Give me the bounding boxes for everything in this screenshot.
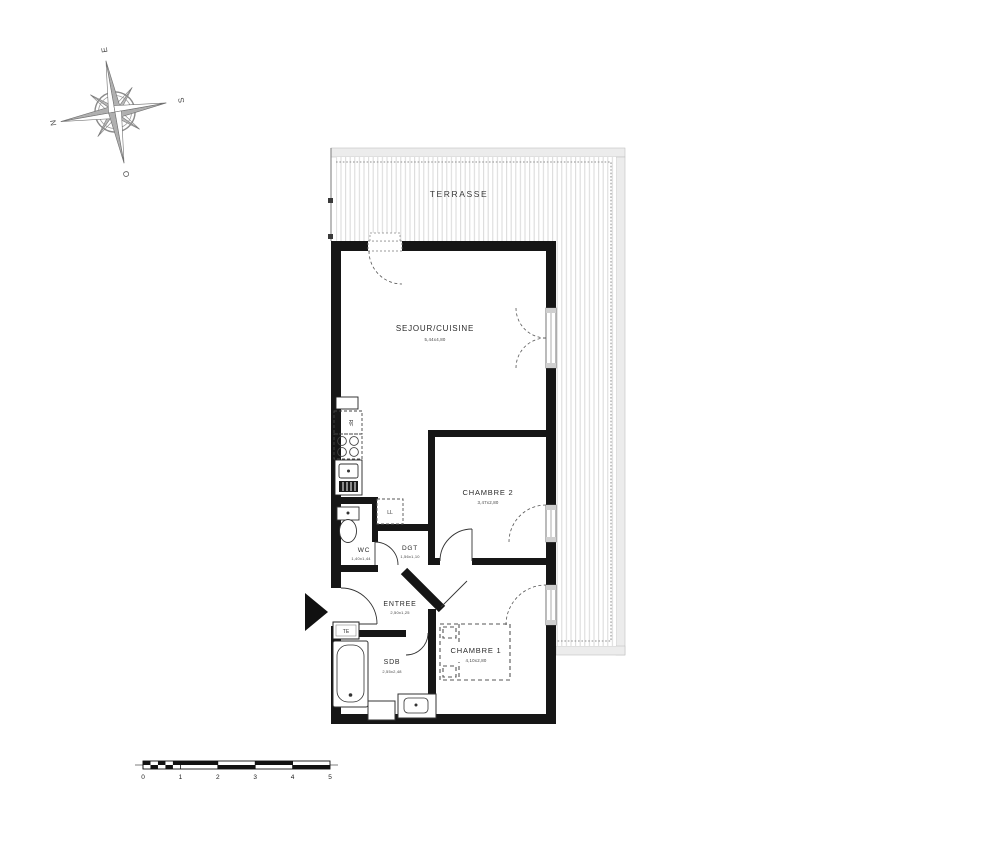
scale-num-5: 5 (328, 774, 332, 781)
terrace-railing-bottom (556, 646, 625, 655)
scale-num-3: 3 (253, 774, 257, 781)
sejour-label: SEJOUR/CUISINE (396, 324, 474, 333)
wall-right-4 (546, 625, 556, 724)
washbasin-drain (415, 704, 418, 707)
toilet-bowl (340, 520, 357, 543)
washing-machine-box: LL (377, 499, 403, 524)
compass-east-label: E (100, 46, 110, 53)
floor-plan-page: N E S O TERRASSE (0, 0, 1000, 857)
sejour-dims: 5,44x4,80 (424, 337, 445, 342)
wall-wc-bottom (331, 565, 378, 572)
terrace-decking-right (556, 241, 616, 646)
chambre1-dims: 4,10x2,80 (465, 658, 486, 663)
chambre2-label: CHAMBRE 2 (463, 488, 514, 497)
compass-rose: N E S O (38, 35, 198, 189)
terrace-railing-right (616, 157, 625, 655)
compass-north-label: N (48, 119, 58, 126)
floor-plan-canvas: N E S O TERRASSE (0, 0, 1000, 857)
wall-chambre2-top (428, 430, 546, 437)
sdb-cabinet (368, 701, 395, 720)
wc-label: WC (358, 547, 370, 554)
washing-machine-label: LL (387, 510, 393, 516)
scale-num-4: 4 (291, 774, 295, 781)
wall-right-2 (546, 368, 556, 505)
terrace-post (328, 234, 333, 239)
wall-chambre2-bottom-a (428, 558, 440, 565)
wall-chambre2-left (428, 437, 435, 558)
wall-right-3 (546, 542, 556, 585)
compass-west-label: O (121, 170, 131, 178)
scale-bar: 0 1 2 3 4 5 (135, 761, 338, 781)
scale-num-2: 2 (216, 774, 220, 781)
scale-num-0: 0 (141, 774, 145, 781)
wall-top-left (331, 241, 368, 251)
sdb-dims: 2,55x2,48 (382, 669, 402, 674)
window-chambre1 (546, 585, 556, 625)
fridge-label: RF (347, 420, 353, 427)
compass-south-label: S (177, 97, 187, 104)
wall-left-upper (331, 251, 341, 588)
wall-wc-top (331, 497, 378, 504)
terrace-decking-top (336, 157, 616, 241)
duct-niche (336, 397, 358, 409)
window-chambre2 (546, 505, 556, 542)
window-sejour (546, 308, 556, 368)
wall-right-1 (546, 241, 556, 308)
wall-chambre2-bottom-b (472, 558, 546, 565)
entree-dims: 2,50x1,25 (390, 610, 410, 615)
scale-num-1: 1 (179, 774, 183, 781)
wall-dgt-top (378, 524, 428, 531)
wall-top-right (402, 241, 556, 251)
sink-drain (347, 470, 350, 473)
entry-arrow-icon (305, 593, 328, 631)
bathtub-drain (349, 693, 353, 697)
terrace-railing-top (331, 148, 625, 157)
entree-label: ENTREE (383, 601, 416, 608)
chambre1-label: CHAMBRE 1 (451, 646, 502, 655)
toilet-cistern-button (347, 512, 350, 515)
dgt-label: DGT (402, 545, 418, 552)
dgt-dims: 1,56x1,10 (400, 554, 420, 559)
wall-bottom (331, 714, 556, 724)
chambre2-dims: 3,47x2,80 (477, 500, 498, 505)
electrical-panel-label: TE (343, 629, 350, 635)
terrace-label: TERRASSE (430, 189, 489, 199)
electrical-panel: TE (333, 622, 359, 639)
terrace-post (328, 198, 333, 203)
wc-dims: 1,40x1,44 (351, 556, 371, 561)
sdb-label: SDB (384, 659, 401, 666)
terrace-door-opening (368, 233, 402, 251)
